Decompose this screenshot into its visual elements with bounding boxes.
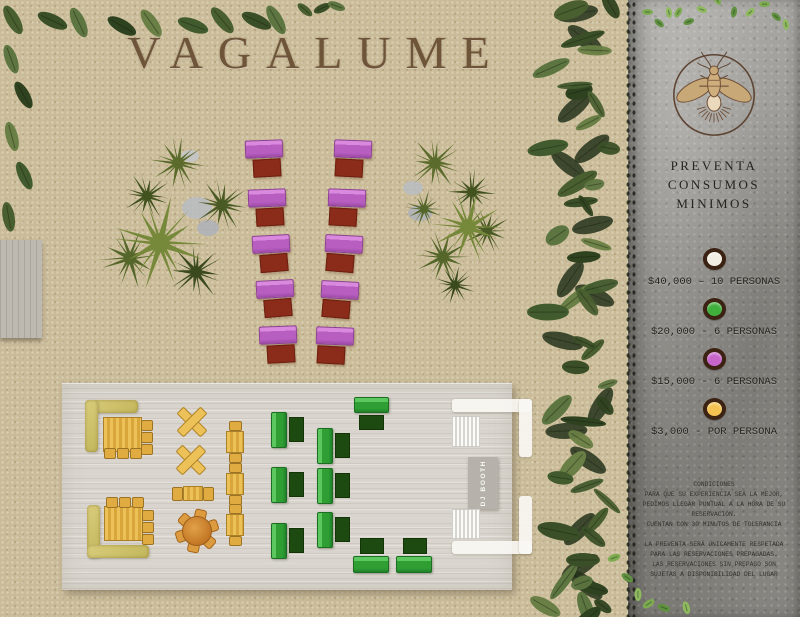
heading-line: MINIMOS [628,194,800,213]
x-table [174,443,208,477]
daybed-magenta [325,234,364,254]
chair [119,497,131,508]
wood-table [103,417,142,452]
chair [130,448,142,459]
table-red [329,207,358,227]
daybed-green [353,556,389,573]
daybed-magenta [248,188,287,207]
firefly-logo-icon [665,42,763,140]
daybed-magenta [245,139,284,158]
table-green [403,538,427,554]
white-daybed [452,416,480,447]
daybed-green [317,428,333,464]
table-green [335,517,350,542]
panel-heading: PREVENTA CONSUMOS MINIMOS [628,156,800,213]
conditions-title: CONDICIONES [640,480,787,490]
legend-swatch-magenta [703,348,726,370]
vagalume-seating-map: VAGALUME DJ BOOTH [0,0,800,617]
x-table [175,405,209,439]
dining-table [226,514,244,536]
chair [172,487,183,501]
legend-label: $15,000 - 6 PERSONAS [651,376,777,388]
table-green [289,472,304,497]
legend-swatch-green [703,298,726,320]
chair [229,421,242,431]
chair [142,522,154,533]
chair [117,448,129,459]
lounge-sofa [85,400,98,452]
legend-swatch-gold [703,398,726,420]
table-green [359,415,384,430]
chair [132,497,144,508]
table-red [263,298,292,318]
daybed-green [396,556,432,573]
chair [229,453,242,463]
table-green [335,433,350,458]
legend-label: $40,000 – 10 PERSONAS [648,276,780,288]
daybed-magenta [328,188,367,207]
daybed-green [271,523,287,559]
heading-line: CONSUMOS [628,175,800,194]
wood-table [104,506,143,541]
chair [229,504,242,514]
dj-booth: DJ BOOTH [468,457,498,509]
daybed-magenta [256,279,295,299]
info-panel: PREVENTA CONSUMOS MINIMOS $40,000 – 10 P… [628,0,800,617]
daybed-magenta [334,139,373,158]
price-legend: $40,000 – 10 PERSONAS $20,000 - 6 PERSON… [628,248,800,448]
chair [229,463,242,473]
chair [106,497,118,508]
chair [141,420,153,431]
daybed-magenta [316,326,355,345]
chair [203,487,214,501]
round-table [179,513,213,547]
lounge-sofa [87,545,149,558]
chair [104,448,116,459]
wood-table [183,486,203,501]
table-green [289,528,304,553]
table-green [335,473,350,498]
daybed-green [271,412,287,448]
legend-swatch-white [703,248,726,270]
white-lounge [519,399,532,457]
dining-table [226,431,244,453]
table-red [259,253,288,273]
table-red [321,299,350,319]
white-lounge [519,496,532,554]
heading-line: PREVENTA [628,156,800,175]
dining-table [226,473,244,495]
table-red [253,158,282,178]
daybed-green [317,512,333,548]
legend-label: $3,000 - POR PERSONA [651,426,777,438]
dj-booth-label: DJ BOOTH [480,460,487,506]
round-table-top [182,516,212,546]
conditions: CONDICIONES PARA QUE SU EXPERIENCIA SEA … [640,480,787,580]
chair [142,534,154,545]
table-red [267,344,296,364]
legend-label: $20,000 - 6 PERSONAS [651,326,777,338]
daybed-magenta [321,280,360,300]
chair [142,510,154,521]
chair [141,444,153,455]
chair [141,432,153,443]
table-red [317,345,346,365]
daybed-green [271,467,287,503]
daybed-green [354,397,389,413]
table-red [325,253,354,273]
white-daybed [452,509,480,539]
daybed-green [317,468,333,504]
daybed-magenta [252,234,291,254]
table-red [335,158,364,178]
table-green [289,417,304,442]
daybed-magenta [259,325,298,344]
chair [229,536,242,546]
table-red [256,207,285,227]
table-green [360,538,384,554]
